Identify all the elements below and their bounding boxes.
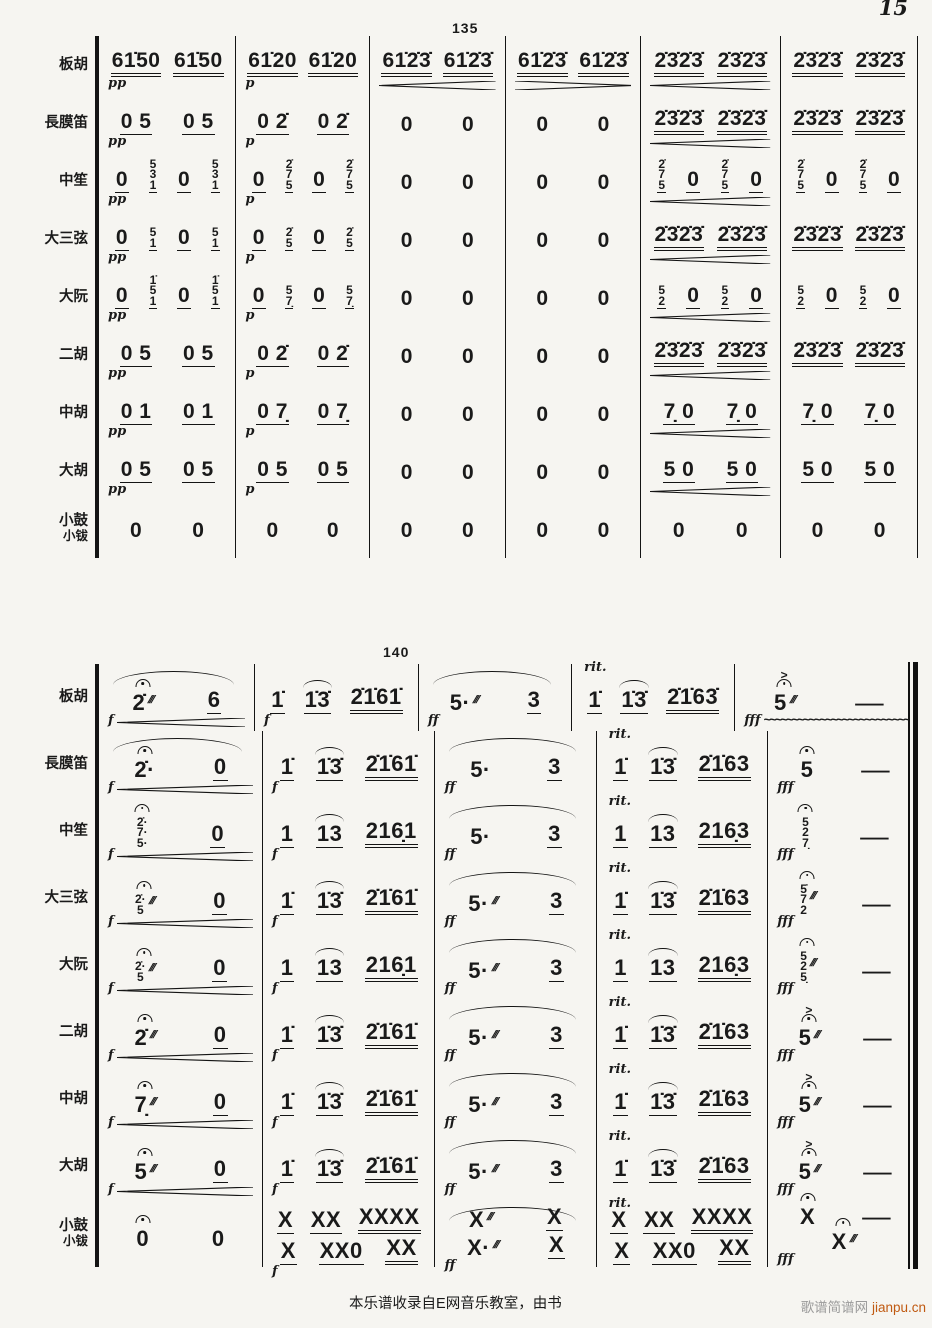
note-token: 5·/// [467,1027,497,1049]
note-token: 13 [649,957,676,982]
note-token: 0 [400,520,414,541]
note-token: 2̇1̇61̇ [365,1088,418,1116]
note-text: XX [644,1209,674,1231]
measure-cell: 1̇1̇3̇2̇1̇61̇f [255,664,419,731]
note-token: 1̇3̇ [316,1024,343,1049]
chord-stack: 2̇·7·5· [137,817,148,849]
tie-arc [648,814,677,822]
note-token: 0 [135,1228,150,1250]
dynamics-line: fff [775,1049,911,1066]
chord-note: 7̣ [346,296,353,307]
note-token: 2̇75 [859,159,868,194]
note-token: 2̇1̇63 [698,753,751,781]
note-text: 61̇2̇3̇ [579,50,628,71]
dynamics-line: fff [775,1253,911,1267]
note-token: 2̇/// [131,692,153,714]
chord-stack: 2̇5 [286,227,293,248]
dynamic-marking: pp [108,137,126,147]
note-text: 5· [468,960,489,982]
notes-line: 00 [377,329,498,367]
dynamic-marking: fff [777,783,793,793]
fermata-icon [800,938,815,946]
dynamics-line: f [270,982,427,999]
measures: 2̇///6f1̇1̇3̇2̇1̇61̇f5·///3ffrit.1̇1̇3̇2… [95,664,918,731]
note-token: 0 [597,230,611,251]
measure-cell: rit.1̇1̇3̇2̇1̇63 [597,1133,769,1200]
measures: 000000000000 [95,500,918,558]
note-token: 61̇50 [111,50,162,77]
measures: 0 50 5pp0 2̇0 2̇p00002̇3̇2̇3̇2̇3̇2̇3̇2̇3… [95,94,918,152]
crescendo-hairpin [650,487,770,496]
note-text: 0 [598,288,610,309]
note-text: 1̇ [281,1158,294,1180]
notes-line: 520520 [788,271,910,309]
note-text: 13 [317,957,342,979]
note-text: — [862,896,891,915]
note-token: 0 [177,285,191,309]
dynamic-marking: f [108,1051,114,1061]
measures: 00XXXXXXXXXX0XXfX///XX·///Xffrit.XXXXXXX… [95,1200,918,1267]
note-token: 1 [613,823,628,848]
note-token: 0 [312,227,326,251]
drum-voices: X///XX·///X [442,1203,588,1259]
note-text: 0 [213,957,226,979]
measure-cell: 0 2̇0 2̇p [236,326,370,384]
note-text: 3 [548,823,561,845]
note-text: 2̇ [134,1027,147,1049]
score-row: 中胡7̣///0f1̇1̇3̇2̇1̇61̇f5·///3ffrit.1̇1̇3… [12,1066,918,1133]
tremolo-mark: /// [813,1030,820,1041]
note-text: 216̣3 [699,820,750,842]
note-text: 2̇1̇63 [699,1088,750,1110]
notes-line: 520520 [648,271,772,309]
note-token: 52 [796,285,805,309]
note-text: 0 [130,520,142,541]
note-text: 1̇ [281,1024,294,1046]
dynamic-marking: p [245,485,254,495]
dynamic-marking: ff [444,783,455,793]
note-token: 0 [597,172,611,193]
note-text: 0 5 [121,111,152,132]
note-text: 0 [213,890,226,912]
note-token: 0 5 [120,343,153,367]
note-token: 1̇3̇ [620,689,647,714]
note-token: 0 7̣ [256,401,289,425]
note-token: 61̇2̇3̇ [443,50,494,77]
note-token: — [866,963,888,982]
note-text: 2̇3̇2̇3̇ [655,108,704,129]
crescendo-hairpin [650,139,770,148]
measures: 01̇5101̇51pp057̣057̣p0000520520520520 [95,268,918,326]
note-token: 2̇3̇2̇3̇ [855,224,906,251]
dynamics-line: ff [442,982,588,999]
measure-cell: 2̇3̇2̇3̇2̇3̇2̇3̇ [641,36,780,94]
note-text: 0 5 [121,459,152,480]
note-text: — [860,829,889,848]
note-text: 2̇ [132,692,145,714]
tremolo-mark: /// [491,963,498,974]
measure-cell: 00 [370,500,506,558]
dynamics-line [648,251,772,268]
note-token: 0 [535,462,549,483]
dynamics-line: f [106,1183,255,1200]
score-row: 中笙05310531pp02̇7502̇75p00002̇7502̇7502̇7… [12,152,918,210]
note-token: 2̇3̇2̇3̇ [717,340,768,367]
note-token: 3 [547,823,562,848]
dynamics-line [788,483,910,500]
measure-cell: 00 [506,326,642,384]
note-token: 216̣3 [698,820,751,848]
chord-note: 5 [137,905,144,916]
score-row: 小鼓小钹00XXXXXXXXXX0XXfX///XX·///Xffrit.XXX… [12,1200,918,1267]
note-text: 0 [462,346,474,367]
measure-cell: 2̇3̇2̇3̇2̇3̇2̇3̇ [781,94,918,152]
note-text: 2̇3̇2̇3̇ [718,340,767,361]
measure-cell: 2̇·5///0f [99,865,263,932]
note-text: 61̇2̇3̇ [382,50,431,71]
notes-line: 051051 [106,213,228,251]
note-text: 3 [528,689,541,711]
accent-mark: > [805,1003,812,1017]
notes-line: 7̣ 07̣ 0 [788,387,910,425]
note-text: 0 [673,520,685,541]
notes-line: 00 [513,155,634,193]
chord-stack: 5̇72 [800,884,807,916]
notes-line: 00 [377,445,498,483]
note-token: 1̇ [270,689,285,714]
note-token: 3 [547,756,562,781]
note-text: 2̇3̇2̇3̇ [718,50,767,71]
note-token: 0 [887,169,901,193]
note-token: 2̇75 [345,159,354,194]
note-text: 5· [468,1161,489,1183]
measures: 2̇·5///0f113216̣1f5·///3ffrit.113216̣352… [95,932,918,999]
note-token: 1̇3̇ [316,1158,343,1183]
note-text: 0 5 [183,343,214,364]
note-token: 2̇3̇2̇3̇ [654,50,705,77]
measure-cell: 00 [370,210,506,268]
chord-note: 2 [800,905,807,916]
dynamics-line: f [270,1183,427,1200]
notes-line: 00 [513,329,634,367]
measure-cell: 5·///3ff [435,865,596,932]
dynamics-line: pp [106,425,228,442]
note-token: 1 [280,957,295,982]
instrument-name: 大胡 [59,464,88,479]
note-token: X [546,1206,563,1231]
note-text: 0 [116,169,128,190]
note-text: XX [386,1237,416,1259]
dynamics-line [377,77,498,94]
dynamics-line [788,193,910,210]
measure-cell: rit.XXXXXXXXXX0XX [597,1200,769,1267]
score-row: 大阮01̇5101̇51pp057̣057̣p0000520520520520 [12,268,918,326]
instrument-label: 中笙 [12,798,95,865]
instrument-label: 大胡 [12,442,95,500]
crescendo-hairpin [117,785,253,794]
note-text: 0 [211,823,224,845]
notes-line: 00 [513,213,634,251]
dynamic-marking: pp [108,253,126,263]
measure-cell: 2̇3̇2̇3̇2̇3̇2̇3̇ [781,326,918,384]
tie-arc [315,948,344,956]
note-text: 1̇ [614,1024,627,1046]
dynamic-marking: ff [444,984,455,994]
notes-line: 00 [106,1203,255,1250]
note-token: 1̇ [613,1024,628,1049]
dynamics-line [604,1265,761,1267]
tie-arc [648,948,677,956]
score-row: 小鼓小钹000000000000 [12,500,918,558]
notes-line: 00 [513,387,634,425]
note-token: XX [385,1237,417,1265]
notes-line: 1̇1̇3̇2̇1̇61̇ [270,1136,427,1183]
measure-cell: 1̇1̇3̇2̇1̇61̇f [263,865,435,932]
notes-line: 00 [106,503,228,541]
note-token: 2̇3̇2̇3̇ [855,340,906,367]
dynamics-line: fff [775,848,911,865]
instrument-label: 大胡 [12,1133,95,1200]
instrument-name: 大三弦 [45,891,89,906]
note-text: X [469,1209,484,1231]
notes-line: 0 50 5 [106,97,228,135]
note-token: 0 [825,285,839,309]
score-row: 大三弦2̇·5///0f1̇1̇3̇2̇1̇61̇f5·///3ffrit.1̇… [12,865,918,932]
note-text: 0 [750,285,762,306]
note-text: 2̇3̇2̇3̇ [655,224,704,245]
dynamics-line [788,541,910,558]
chord-stack: 2̇75 [722,159,729,191]
dynamic-marking: p [245,369,254,379]
note-token: 0 [597,346,611,367]
note-token: 1̇ [613,1091,628,1116]
instrument-name: 二胡 [59,348,88,363]
note-token: 2̇75 [796,159,805,194]
measure-cell: 61̇2061̇20p [236,36,370,94]
crescendo-hairpin [117,1053,253,1062]
measure-cell: 00 [506,500,642,558]
note-text: 2̇3̇2̇3̇ [793,340,842,361]
note-token: X/// [831,1231,856,1253]
note-text: X [549,1234,564,1256]
note-text: 0 [214,1024,227,1046]
measure-cell: 00 [99,500,236,558]
note-token: 531 [149,159,158,194]
chord-stack: 2̇·5 [135,894,146,915]
measure-cell: rit.1̇1̇3̇2̇1̇63 [597,1066,769,1133]
note-token: 0 [535,230,549,251]
dynamics-line: ff [442,1259,588,1271]
measure-cell: 00 [641,500,780,558]
measure-cell: 2̇3̇2̇3̇2̇3̇2̇3̇ [641,210,780,268]
measures: 5///0f1̇1̇3̇2̇1̇61̇f5·///3ffrit.1̇1̇3̇2̇… [95,1133,918,1200]
note-token: — [866,1209,888,1228]
chord-stack: 527̣ [802,817,809,849]
dynamics-line [513,193,634,210]
chord-stack: 2̇75 [797,159,804,191]
instrument-label: 長膜笛 [12,731,95,798]
dynamics-line: f [270,915,427,932]
note-text: 7̣ 0 [802,401,833,422]
dynamics-line: fff [775,781,911,798]
note-token: 57̣ [285,285,294,309]
measure-cell: X—X///fff [768,1200,918,1267]
measure-cell: 00 [506,384,642,442]
measure-cell: 01̇5101̇51pp [99,268,236,326]
measure-cell: 00 [99,1200,263,1267]
note-token: 0 7̣ [317,401,350,425]
measure-cell: 00 [370,442,506,500]
note-text: 5 0 [802,459,833,480]
note-token: 52 [859,285,868,309]
dynamics-line: f [106,1049,255,1066]
measures: 2̇·5///0f1̇1̇3̇2̇1̇61̇f5·///3ffrit.1̇1̇3… [95,865,918,932]
note-token: 0 [535,172,549,193]
note-token: 0 [535,114,549,135]
note-token: X [610,1209,627,1234]
note-token: 61̇20 [247,50,298,77]
chord-note: 5 [797,180,804,191]
note-token: XX0 [652,1240,697,1265]
tie-arc [315,747,344,755]
dynamic-marking: pp [108,485,126,495]
measure-number-label: 140 [383,644,409,660]
decrescendo-hairpin [515,81,632,90]
note-text: 6 [208,689,221,711]
instrument-name: 大三弦 [45,232,89,247]
note-text: 1̇ [614,1158,627,1180]
instrument-name: 長膜笛 [45,757,89,772]
measures: 2̇///0f1̇1̇3̇2̇1̇61̇f5·///3ffrit.1̇1̇3̇2… [95,999,918,1066]
chord-stack: 2̇75 [658,159,665,191]
measures: 05310531pp02̇7502̇75p00002̇7502̇7502̇750… [95,152,918,210]
note-text: X [832,1231,847,1253]
fermata-icon [137,948,152,956]
note-text: 1̇ [281,890,294,912]
dynamics-line: p [243,251,362,268]
note-token: 7̣ 0 [663,401,696,425]
measure-cell: 00 [370,384,506,442]
score-row: 中笙2̇·7·5·0f113216̣1f5·3ffrit.113216̣3527… [12,798,918,865]
measure-cell: 5///>—fff [768,1133,918,1200]
note-text: 2̇1̇63 [699,753,750,775]
note-text: 2̇· [134,759,155,781]
dynamic-marking: p [245,79,254,89]
note-text: 1̇3̇ [650,890,675,912]
dynamics-line [648,425,772,442]
note-text: 216̣3 [699,954,750,976]
score-system-2: 板胡2̇///6f1̇1̇3̇2̇1̇61̇f5·///3ffrit.1̇1̇3… [12,664,918,1267]
dynamic-marking: f [108,1185,114,1195]
note-text: 2̇1̇61̇ [366,753,417,775]
note-token: X/// [468,1209,493,1231]
measure-cell: 02̇502̇5p [236,210,370,268]
notes-line: 00 [377,97,498,135]
note-token: 3 [549,957,564,982]
fermata-icon [135,804,150,812]
tremolo-mark: /// [849,1234,856,1245]
measure-cell: 5·///3ff [435,932,596,999]
notes-line: 00 [377,503,498,541]
note-token: 13 [649,823,676,848]
notes-line: XXXXXXX [604,1206,761,1234]
measure-cell: 00 [506,442,642,500]
tremolo-mark: /// [147,695,154,706]
chord-note: 1 [212,238,219,249]
dynamics-line [513,77,634,94]
measure-cell: rit.1̇1̇3̇2̇1̇63 [597,865,769,932]
note-text: 1̇ [614,890,627,912]
note-text: 7̣ 0 [664,401,695,422]
note-token: 531 [211,159,220,194]
measure-cell: 00 [236,500,370,558]
notes-line: 0 50 5 [106,329,228,367]
note-token: 7̣/// [133,1094,155,1116]
note-text: 61̇2̇3̇ [518,50,567,71]
accent-mark: > [805,1070,812,1084]
notes-line: 00 [377,213,498,251]
note-text: 1̇3̇ [621,689,646,711]
note-text: 5 [799,1094,812,1116]
measures: 7̣///0f1̇1̇3̇2̇1̇61̇f5·///3ffrit.1̇1̇3̇2… [95,1066,918,1133]
instrument-name: 大阮 [59,958,88,973]
note-token: 0 5 [182,343,215,367]
measure-cell: 00 [370,326,506,384]
notes-line: 2̇3̇2̇3̇2̇3̇2̇3̇ [648,213,772,251]
notes-line: 5///>— [775,1002,911,1049]
note-token: 0 [400,114,414,135]
dynamics-line: ff [442,1183,588,1200]
dynamics-line [788,367,910,384]
note-text: 0 [401,288,413,309]
note-token: 2̇3̇2̇3̇ [855,50,906,77]
note-token: 1̇3̇ [649,756,676,781]
note-text: X [614,1240,629,1262]
chord-stack: 1̇51 [150,275,157,307]
tie-arc [648,1082,677,1090]
crescendo-hairpin [117,1120,253,1129]
notes-line: 00 [648,503,772,541]
chord-note: 7̣ [802,838,809,849]
note-text: 13 [317,823,342,845]
measures: 0 10 1pp0 7̣0 7̣p00007̣ 07̣ 07̣ 07̣ 0 [95,384,918,442]
measures: 61̇5061̇50pp61̇2061̇20p61̇2̇3̇61̇2̇3̇61̇… [95,36,918,94]
chord-stack: 52 [797,285,804,306]
note-text: 0 [750,169,762,190]
dynamics-line: f [106,848,255,865]
notes-line: 2̇3̇2̇3̇2̇3̇2̇3̇ [648,97,772,135]
note-text: 0 [888,285,900,306]
note-token: 0 [535,346,549,367]
note-text: 1 [614,823,627,845]
note-token: 0 [212,890,227,915]
score-row: 長膜笛0 50 5pp0 2̇0 2̇p00002̇3̇2̇3̇2̇3̇2̇3̇… [12,94,918,152]
crescendo-hairpin [650,197,770,206]
note-token: 5 [800,759,815,781]
rit-label: rit. [609,1129,631,1144]
note-text: 0 [598,114,610,135]
dynamic-marking: f [272,783,278,793]
dynamics-line: fff [775,915,911,932]
measures: 2̇·7·5·0f113216̣1f5·3ffrit.113216̣3527̣—… [95,798,918,865]
notes-line: 00 [788,503,910,541]
trill-wavy-line: ~~~~~~~~~~~~~~~~~~~~~~~~~~ [764,715,909,724]
note-text: 5· [468,1094,489,1116]
notes-line: 61̇2̇3̇61̇2̇3̇ [377,39,498,77]
note-text: 0 2̇ [257,111,288,132]
note-token: 2̇1̇61̇ [365,1155,418,1183]
measure-cell: 520520 [641,268,780,326]
